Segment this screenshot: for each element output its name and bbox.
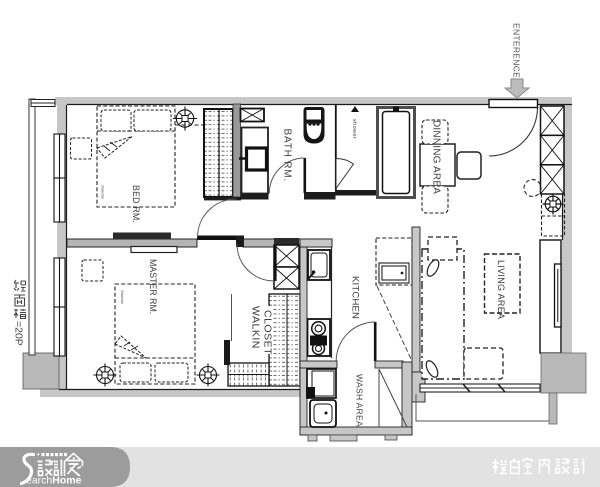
- svg-text:Standar: Standar: [101, 185, 106, 200]
- svg-text:BED RM.: BED RM.: [131, 185, 141, 223]
- svg-text:ENTERENCE: ENTERENCE: [512, 23, 522, 78]
- svg-text:shower: shower: [351, 119, 357, 139]
- svg-text:DINNING AREA: DINNING AREA: [431, 120, 442, 194]
- svg-text:CLOSET: CLOSET: [262, 310, 274, 355]
- svg-text:BATH RM.: BATH RM.: [282, 129, 293, 182]
- svg-text:MASTER RM.: MASTER RM.: [148, 259, 158, 314]
- svg-text:=20P: =20P: [13, 321, 25, 346]
- svg-text:WASH AREA: WASH AREA: [355, 374, 365, 427]
- svg-text:KITCHEN: KITCHEN: [350, 276, 361, 319]
- svg-text:LIVING AREA: LIVING AREA: [496, 260, 506, 319]
- svg-text:earchHome: earchHome: [26, 475, 82, 487]
- svg-text:Standar: Standar: [120, 290, 125, 305]
- svg-text:WALKIN: WALKIN: [250, 306, 262, 349]
